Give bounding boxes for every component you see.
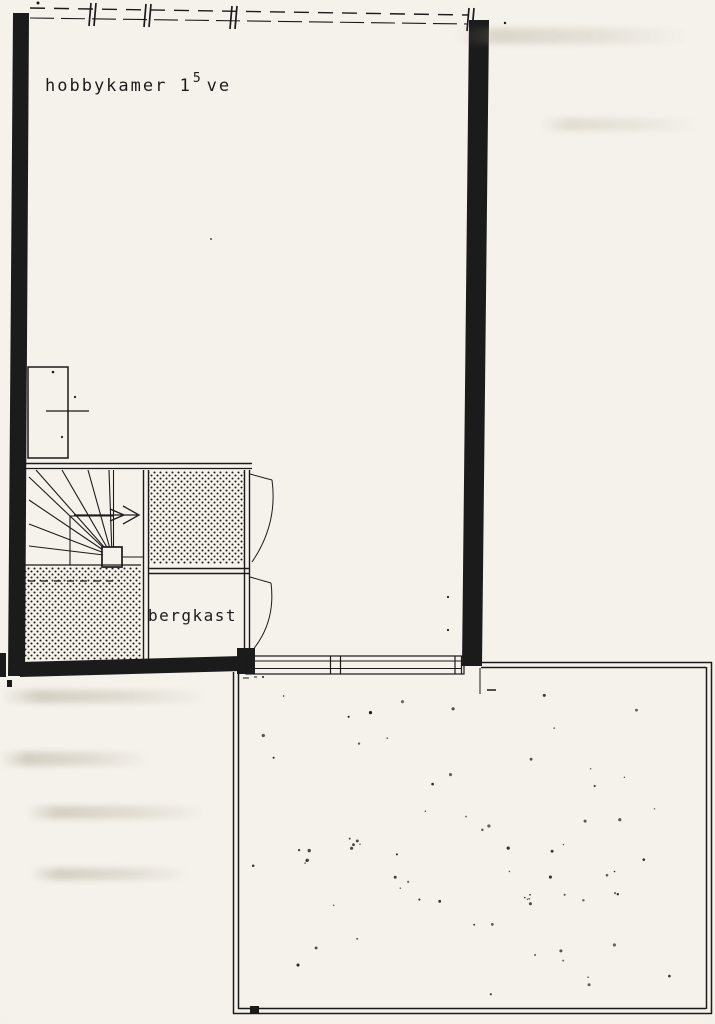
room-label-text: hobbykamer 1 bbox=[45, 76, 192, 96]
wall-end-mark bbox=[0, 653, 6, 677]
room-label-suffix: ve bbox=[207, 76, 231, 96]
bleedthrough-smudge bbox=[30, 868, 190, 880]
room-label-superscript: 5 bbox=[193, 71, 201, 86]
chimney-box bbox=[28, 367, 89, 458]
bleedthrough-smudge bbox=[455, 28, 690, 44]
hobbykamer-room-label: hobbykamer 15ve bbox=[45, 76, 231, 96]
terrace-gravel-dots bbox=[252, 694, 671, 995]
floor-plan-scan: hobbykamer 15ve bergkast bbox=[0, 0, 715, 1024]
newel-post bbox=[102, 547, 122, 567]
right-wall bbox=[462, 20, 489, 666]
door-swing-lower bbox=[250, 577, 272, 651]
bergkast-room-label: bergkast bbox=[148, 606, 237, 625]
terrace-border bbox=[233, 662, 712, 1014]
bleedthrough-smudge bbox=[2, 690, 207, 703]
wall-end-tick bbox=[7, 680, 12, 687]
bottom-window bbox=[246, 656, 464, 674]
window-mullions bbox=[331, 656, 462, 674]
bleedthrough-smudge bbox=[25, 806, 205, 819]
door-swings bbox=[250, 474, 273, 651]
scan-marks bbox=[243, 668, 496, 694]
top-facade-dashed-line bbox=[30, 3, 474, 31]
door-swing-upper bbox=[250, 474, 273, 562]
stair-direction-arrow bbox=[74, 506, 139, 524]
stipple-upper bbox=[149, 471, 244, 564]
facade-tick-marks bbox=[89, 3, 474, 31]
bleedthrough-smudge bbox=[0, 752, 150, 766]
bleedthrough-smudge bbox=[540, 118, 700, 131]
